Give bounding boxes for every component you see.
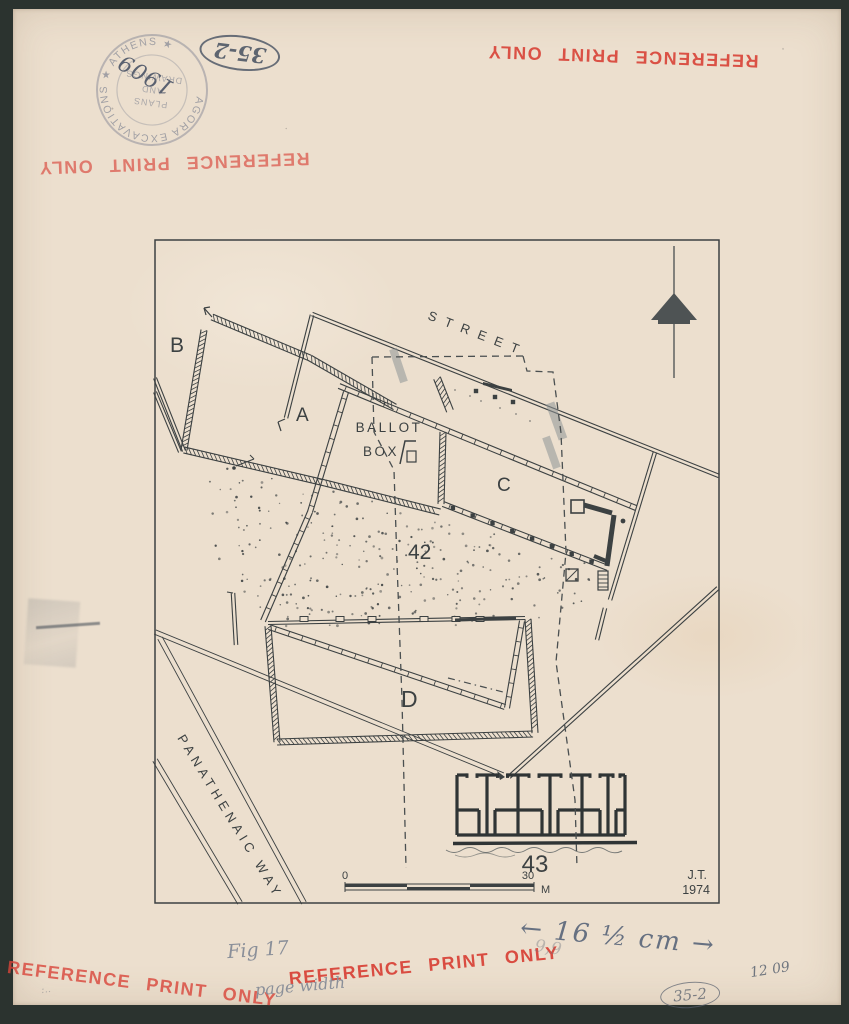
tiny-scribble: :.. [40,984,51,996]
label-building-d: D [401,686,418,712]
label-building-b: B [170,334,184,357]
label-box: BOX [363,444,399,459]
credit-initials: J.T. [688,868,707,882]
building-43-elevation [446,773,637,857]
ballot-box-symbol [400,441,416,464]
scale-zero: 0 [342,870,348,882]
plan-frame [155,240,719,903]
north-arrow-icon [651,246,697,378]
scanned-plan-sheet: B A C 42 D 43 BALLOT BOX STREET PANATHEN… [0,0,849,1024]
scale-unit: M [541,884,550,896]
credit: J.T. 1974 [682,868,710,897]
label-area-42: 42 [408,541,431,564]
label-building-c: C [497,475,511,496]
dash-dot-line [448,678,503,692]
figure-number-note: Fig 17 [226,937,289,963]
scale-bar: 0 30 M [342,870,550,896]
scale-thirty: 30 [522,870,534,882]
graphite-smudge [24,598,80,667]
faint-pencil-note: 9,9 [533,936,563,960]
label-building-a: A [296,405,309,426]
credit-year: 1974 [682,883,710,897]
label-street: STREET [426,308,530,360]
label-ballot: BALLOT [356,420,423,435]
